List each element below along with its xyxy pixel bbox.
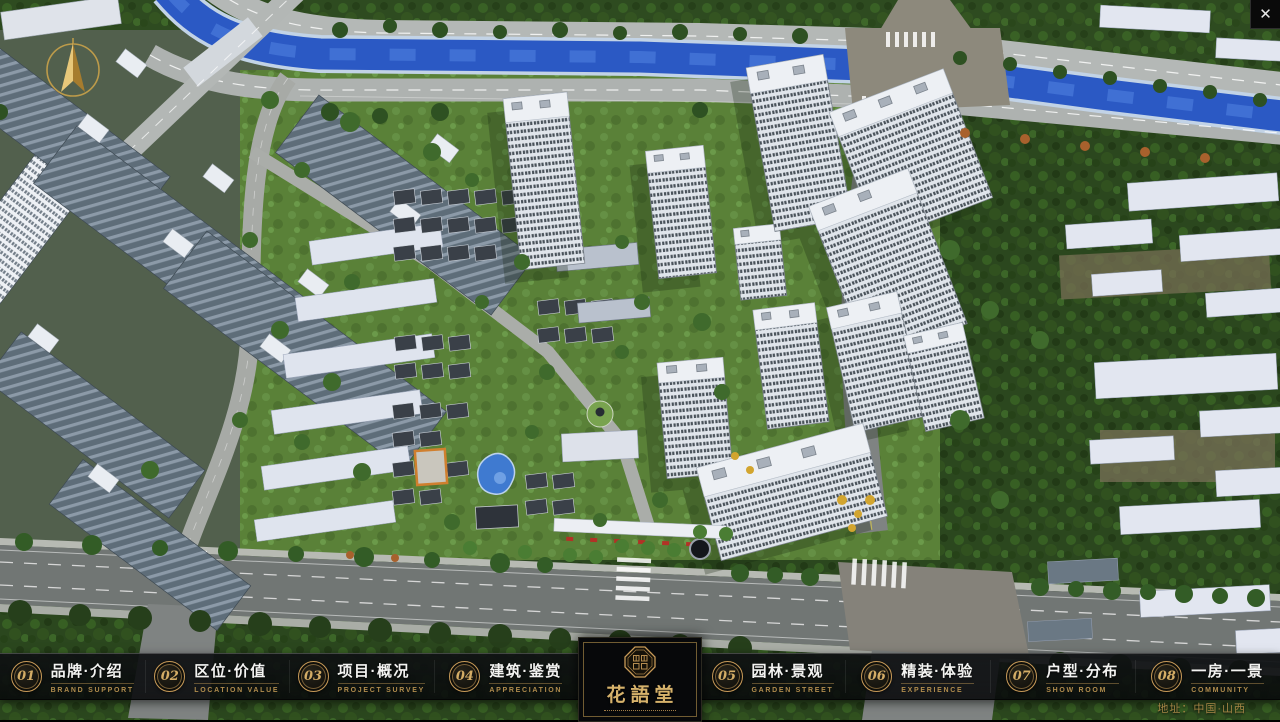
nav-label-zh: 一房·一景 [1191,660,1264,681]
nav-number-badge: 06 [861,661,892,692]
nav-label-en: APPRECIATION [489,683,562,694]
nav-label-en: BRAND SUPPORT [51,683,134,694]
project-logo-title: 花語堂 [601,680,678,707]
nav-label-en: SHOW ROOM [1046,683,1119,694]
nav-item-architecture[interactable]: 04 建筑·鉴赏 APPRECIATION [434,654,579,699]
nav-item-brand[interactable]: 01 品牌·介绍 BRAND SUPPORT [0,654,145,699]
nav-item-location[interactable]: 02 区位·价值 LOCATION VALUE [145,654,290,699]
nav-number-badge: 08 [1151,661,1182,692]
nav-label-zh: 园林·景观 [752,660,834,681]
nav-item-room-view[interactable]: 08 一房·一景 COMMUNITY [1135,654,1280,699]
logo-divider [604,710,676,711]
project-logo-panel[interactable]: 花語堂 [578,637,702,722]
nav-number-badge: 01 [11,661,42,692]
nav-number-badge: 05 [712,661,743,692]
close-icon: ✕ [1259,7,1272,22]
nav-number-badge: 02 [154,661,185,692]
nav-number-badge: 07 [1006,661,1037,692]
nav-item-project[interactable]: 03 项目·概况 PROJECT SURVEY [289,654,434,699]
logo-seal-icon [623,645,657,679]
bottom-nav-right: 05 园林·景观 GARDEN STREET 06 精装·体验 EXPERIEN… [700,653,1280,700]
nav-label-en: PROJECT SURVEY [338,683,425,694]
nav-item-interior[interactable]: 06 精装·体验 EXPERIENCE [845,654,990,699]
nav-item-garden[interactable]: 05 园林·景观 GARDEN STREET [700,654,845,699]
compass-icon [40,36,106,102]
nav-number-badge: 03 [298,661,329,692]
nav-number-badge: 04 [449,661,480,692]
close-button[interactable]: ✕ [1250,0,1280,29]
nav-label-zh: 户型·分布 [1046,660,1119,681]
address-label: 地址：中国·山西 [1157,700,1246,716]
bottom-nav-left: 01 品牌·介绍 BRAND SUPPORT 02 区位·价值 LOCATION… [0,653,578,700]
nav-label-zh: 品牌·介绍 [51,660,134,681]
nav-label-zh: 建筑·鉴赏 [489,660,562,681]
nav-label-zh: 精装·体验 [901,660,974,681]
masterplan-render [0,0,1280,720]
nav-label-en: GARDEN STREET [752,683,834,694]
nav-label-zh: 项目·概况 [338,660,425,681]
nav-label-en: LOCATION VALUE [194,683,279,694]
nav-label-zh: 区位·价值 [194,660,279,681]
nav-label-en: COMMUNITY [1191,683,1264,694]
nav-item-unit-layout[interactable]: 07 户型·分布 SHOW ROOM [990,654,1135,699]
nav-label-en: EXPERIENCE [901,683,974,694]
